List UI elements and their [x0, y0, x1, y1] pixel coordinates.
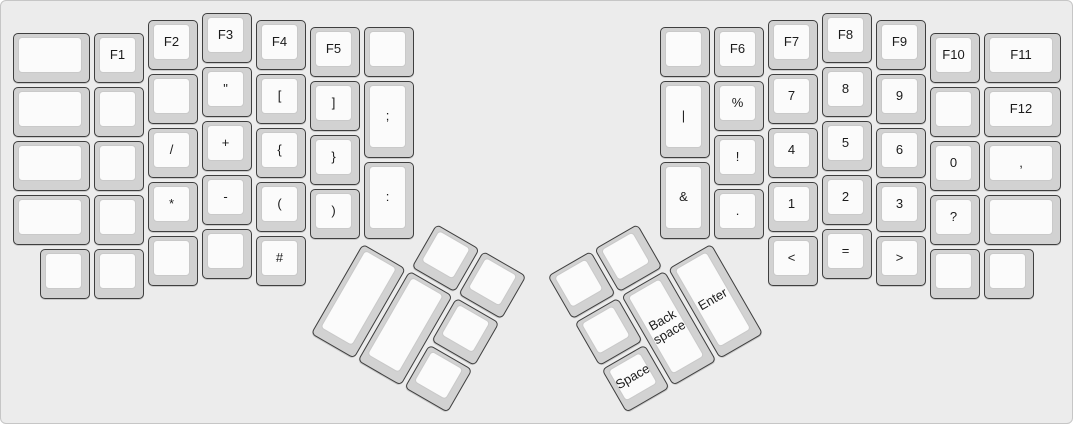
key-label: + [222, 136, 230, 150]
key-f3[interactable]: F3 [202, 13, 252, 63]
key-f8[interactable]: F8 [822, 13, 872, 63]
keycap-top: F8 [827, 17, 864, 53]
keycap-top: F12 [989, 91, 1053, 127]
keycap-top: ( [261, 186, 298, 222]
keycap-top: 9 [881, 78, 918, 114]
key-label: * [169, 197, 174, 211]
keycap-top: + [207, 125, 244, 161]
keycap-top: 5 [827, 125, 864, 161]
key-right-bracket[interactable]: ] [310, 81, 360, 131]
key-f9[interactable]: F9 [876, 20, 926, 70]
key-label: ; [386, 109, 390, 123]
keycap-top [45, 253, 82, 289]
key-plus[interactable]: + [202, 121, 252, 171]
key-label: > [896, 251, 904, 265]
key-slash[interactable]: / [148, 128, 198, 178]
key-label: ? [950, 210, 957, 224]
key-label: 8 [842, 82, 849, 96]
key-pipe[interactable]: | [660, 81, 710, 158]
key-label: F5 [326, 42, 341, 56]
key-label: 6 [896, 143, 903, 157]
keycap-top: F11 [989, 37, 1053, 73]
keycap-top [421, 229, 471, 279]
keycap-top: 2 [827, 179, 864, 215]
keycap-top [601, 231, 651, 281]
key-label: F11 [1010, 48, 1031, 62]
key-blank[interactable] [930, 87, 980, 137]
keycap-top [18, 91, 82, 127]
keycap-top: | [665, 85, 702, 148]
key-blank[interactable] [94, 87, 144, 137]
key-label: } [331, 150, 335, 164]
keycap-top [99, 91, 136, 127]
key-label: Enter [696, 285, 730, 313]
key-label: 5 [842, 136, 849, 150]
keycap-top: [ [261, 78, 298, 114]
keycap-top [18, 37, 82, 73]
key-minus[interactable]: - [202, 175, 252, 225]
keycap-top [935, 253, 972, 289]
key-blank[interactable] [13, 141, 90, 191]
keycap-top: Space [608, 351, 658, 401]
keycap-top: F6 [719, 31, 756, 67]
key-right-brace[interactable]: } [310, 135, 360, 185]
keycap-top [989, 199, 1053, 235]
keycap-top: % [719, 85, 756, 121]
keycap-top: F10 [935, 37, 972, 73]
key-blank[interactable] [13, 195, 90, 245]
key-blank[interactable] [984, 195, 1061, 245]
key-label: { [277, 143, 281, 157]
keycap-top: ? [935, 199, 972, 235]
key-question[interactable]: ? [930, 195, 980, 245]
key-equals[interactable]: = [822, 229, 872, 279]
keycap-top [369, 31, 406, 67]
keycap-top: > [881, 240, 918, 276]
key-label: 1 [788, 197, 795, 211]
keycap-top: 8 [827, 71, 864, 107]
keycap-top [989, 253, 1026, 289]
key-left-bracket[interactable]: [ [256, 74, 306, 124]
key-5[interactable]: 5 [822, 121, 872, 171]
key-right-paren[interactable]: ) [310, 189, 360, 239]
key-blank[interactable] [94, 249, 144, 299]
key-label: [ [278, 89, 282, 103]
key-label: - [223, 190, 227, 204]
keycap-top: < [773, 240, 810, 276]
key-asterisk[interactable]: * [148, 182, 198, 232]
key-blank[interactable] [660, 27, 710, 77]
key-label: F1 [110, 48, 125, 62]
keycap-top: ! [719, 139, 756, 175]
key-label: 2 [842, 190, 849, 204]
key-f11[interactable]: F11 [984, 33, 1061, 83]
key-blank[interactable] [40, 249, 90, 299]
key-less-than[interactable]: < [768, 236, 818, 286]
keycap-top: F1 [99, 37, 136, 73]
key-label: . [736, 204, 740, 218]
key-4[interactable]: 4 [768, 128, 818, 178]
key-9[interactable]: 9 [876, 74, 926, 124]
key-label: 3 [896, 197, 903, 211]
key-label: : [386, 190, 390, 204]
keycap-top [99, 253, 136, 289]
key-label: ( [277, 197, 281, 211]
key-label: F3 [218, 28, 233, 42]
keyboard-canvas: F1F2F3F4F5"[];/+{}:*-()#F6F7F8F9F10F11|%… [0, 0, 1073, 424]
keycap-top [468, 256, 518, 306]
key-f12[interactable]: F12 [984, 87, 1061, 137]
keycap-top: F2 [153, 24, 190, 60]
key-label: ) [331, 204, 335, 218]
keycap-top: " [207, 71, 244, 107]
keycap-top: . [719, 193, 756, 229]
key-label: | [682, 109, 685, 123]
keycap-top [99, 199, 136, 235]
key-f6[interactable]: F6 [714, 27, 764, 77]
keycap-top [18, 199, 82, 235]
key-label: " [223, 82, 228, 96]
key-7[interactable]: 7 [768, 74, 818, 124]
keycap-top: 0 [935, 145, 972, 181]
keycap-top: } [315, 139, 352, 175]
keyboard-layout-stage: F1F2F3F4F5"[];/+{}:*-()#F6F7F8F9F10F11|%… [0, 0, 1073, 424]
key-f4[interactable]: F4 [256, 20, 306, 70]
key-left-brace[interactable]: { [256, 128, 306, 178]
keycap-top [581, 305, 631, 355]
key-blank[interactable] [148, 74, 198, 124]
key-left-paren[interactable]: ( [256, 182, 306, 232]
keycap-top: F9 [881, 24, 918, 60]
keycap-top: / [153, 132, 190, 168]
key-double-quote[interactable]: " [202, 67, 252, 117]
keycap-top [207, 233, 244, 269]
key-8[interactable]: 8 [822, 67, 872, 117]
key-label: F7 [784, 35, 799, 49]
key-blank[interactable] [94, 195, 144, 245]
key-greater-than[interactable]: > [876, 236, 926, 286]
key-blank[interactable] [94, 141, 144, 191]
keycap-top: ; [369, 85, 406, 148]
key-label: / [170, 143, 174, 157]
key-f5[interactable]: F5 [310, 27, 360, 77]
keycap-top: 3 [881, 186, 918, 222]
key-label: F9 [892, 35, 907, 49]
keycap-top: F7 [773, 24, 810, 60]
keycap-top: * [153, 186, 190, 222]
keycap-top: : [369, 166, 406, 229]
key-blank[interactable] [13, 87, 90, 137]
keycap-top [153, 240, 190, 276]
keycap-top [153, 78, 190, 114]
key-f10[interactable]: F10 [930, 33, 980, 83]
keycap-top: , [989, 145, 1053, 181]
keycap-top: ) [315, 193, 352, 229]
keycap-top [18, 145, 82, 181]
key-blank[interactable] [202, 229, 252, 279]
key-comma[interactable]: , [984, 141, 1061, 191]
key-label: 0 [950, 156, 957, 170]
keycap-top: 4 [773, 132, 810, 168]
keycap-top [665, 31, 702, 67]
key-label: F6 [730, 42, 745, 56]
key-colon[interactable]: : [364, 162, 414, 239]
key-label: ! [736, 150, 740, 164]
key-label: 7 [788, 89, 795, 103]
key-0[interactable]: 0 [930, 141, 980, 191]
key-6[interactable]: 6 [876, 128, 926, 178]
key-3[interactable]: 3 [876, 182, 926, 232]
key-hash[interactable]: # [256, 236, 306, 286]
key-label: F2 [164, 35, 179, 49]
key-label: F10 [942, 48, 964, 62]
key-exclamation[interactable]: ! [714, 135, 764, 185]
key-blank[interactable] [984, 249, 1034, 299]
keycap-top: - [207, 179, 244, 215]
keycap-top: = [827, 233, 864, 269]
keycap-top: F5 [315, 31, 352, 67]
keycap-top: { [261, 132, 298, 168]
key-label: F12 [1010, 102, 1032, 116]
keycap-top: F4 [261, 24, 298, 60]
key-label: < [788, 251, 796, 265]
keycap-top: # [261, 240, 298, 276]
key-blank[interactable] [148, 236, 198, 286]
key-label: Space [613, 361, 652, 392]
key-f2[interactable]: F2 [148, 20, 198, 70]
key-label: F4 [272, 35, 287, 49]
key-1[interactable]: 1 [768, 182, 818, 232]
keycap-top [441, 303, 491, 353]
keycap-top: 7 [773, 78, 810, 114]
key-blank[interactable] [930, 249, 980, 299]
key-blank[interactable] [13, 33, 90, 83]
keycap-top: 1 [773, 186, 810, 222]
keycap-top [99, 145, 136, 181]
keycap-top: F3 [207, 17, 244, 53]
key-label: 4 [788, 143, 795, 157]
key-label: , [1019, 156, 1023, 170]
key-label: 9 [896, 89, 903, 103]
key-label: # [276, 251, 283, 265]
key-label: F8 [838, 28, 853, 42]
key-label: = [842, 244, 850, 258]
key-period[interactable]: . [714, 189, 764, 239]
key-2[interactable]: 2 [822, 175, 872, 225]
key-blank[interactable] [364, 27, 414, 77]
key-percent[interactable]: % [714, 81, 764, 131]
keycap-top [935, 91, 972, 127]
key-f1[interactable]: F1 [94, 33, 144, 83]
key-ampersand[interactable]: & [660, 162, 710, 239]
key-semicolon[interactable]: ; [364, 81, 414, 158]
key-label: % [732, 96, 744, 110]
keycap-top: ] [315, 85, 352, 121]
key-label: & [679, 190, 688, 204]
key-f7[interactable]: F7 [768, 20, 818, 70]
keycap-top: & [665, 166, 702, 229]
key-label: Back space [644, 305, 688, 347]
key-label: ] [332, 96, 336, 110]
keycap-top: 6 [881, 132, 918, 168]
keycap-top [414, 350, 464, 400]
keycap-top [554, 258, 604, 308]
